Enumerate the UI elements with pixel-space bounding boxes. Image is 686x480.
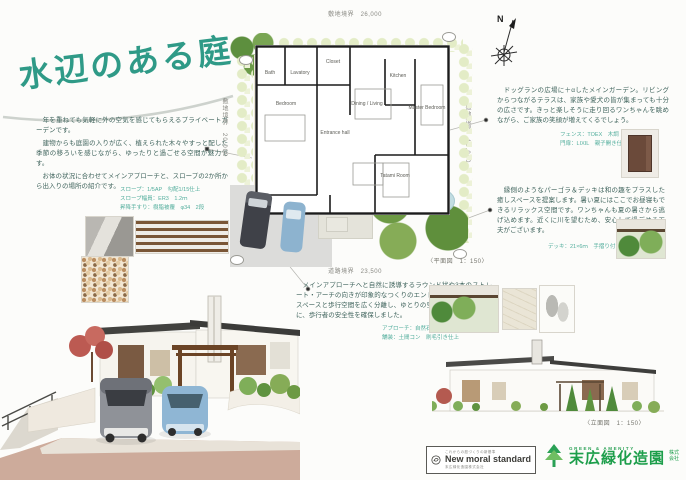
room-label: Bath <box>265 70 275 76</box>
compass-rose: N <box>483 12 529 70</box>
perspective-rendering <box>0 290 300 480</box>
company-tree-icon <box>543 443 565 469</box>
company-logo: GREEN & AMENITY 末広緑化造園 株式会社 <box>543 443 681 469</box>
intro-paragraphs: 年を重ねても気軽に外の空気を感じてもらえるプライベートガーデンです。 建物からも… <box>36 116 228 195</box>
intro-spec-line: スロープ幅員：ER3 1.2ｍ <box>120 195 204 204</box>
elevation-scale-label: 〈立面図 1：150〉 <box>545 418 645 427</box>
slope-step-photo <box>86 217 133 256</box>
annotation-2-spec-line: デッキ：21×6ｍ 手摺り付 <box>548 243 615 252</box>
plan-entrance-porch <box>326 217 348 232</box>
presentation-board: 水辺のある庭 年を重ねても気軽に外の空気を感じてもらえるプライベートガーデンです… <box>0 0 686 480</box>
render-entry-door <box>118 345 144 381</box>
annotation-1-specs: フェンス：TOEX 木調 門扉：LIXIL 親子開き仕様 <box>560 131 628 149</box>
compass-arrow <box>509 18 516 29</box>
compass-north-label: N <box>497 14 504 24</box>
elevation-rendering <box>432 332 664 424</box>
gate-product-photo <box>622 130 658 177</box>
intro-spec-list: スロープ：1/5AP 勾配1/15仕上 スロープ幅員：ER3 1.2ｍ 昇降手す… <box>120 186 204 212</box>
plan-dimension-left: 敷地境界 20,000 <box>220 98 229 157</box>
room-label: Kitchen <box>390 73 407 79</box>
intro-spec-line: スロープ：1/5AP 勾配1/15仕上 <box>120 186 204 195</box>
plan-corner-marker <box>442 32 456 42</box>
room-label: Tatami Room <box>380 173 409 179</box>
render-blue-car <box>162 386 208 436</box>
plan-wall-lines <box>255 45 450 215</box>
room-label: Closet <box>326 59 340 65</box>
render-van <box>100 378 152 443</box>
annotation-1-spec-line: 門扉：LIXIL 親子開き仕様 <box>560 140 628 149</box>
intro-paragraph-2: 建物からも庭園の入りが広く、植えられた木々やすっと配した季節の移ろいを感じながら… <box>36 139 228 169</box>
plan-scale-label: 〈平面図 1：150〉 <box>418 256 488 265</box>
badge-main-text: New moral standard <box>445 455 531 465</box>
intro-spec-line: 昇降手すり：樹脂被覆 φ34 2段 <box>120 204 204 213</box>
elevation-chimney <box>532 340 542 364</box>
plan-corner-marker <box>230 255 244 265</box>
room-label: Lavatory <box>290 70 309 76</box>
badge-bottom-text: 末広緑化造園株式会社 <box>445 465 531 470</box>
plan-house-footprint: Bedroom Bath Lavatory Closet Entrance ha… <box>255 45 450 215</box>
moral-standard-badge: これからの庭づくりの新基準 New moral standard 末広緑化造園株… <box>426 446 536 474</box>
plan-dimension-bottom: 道路境界 23,500 <box>300 266 410 275</box>
room-label: Dining / Living <box>351 101 382 107</box>
company-suffix: 株式会社 <box>669 450 681 462</box>
leaf-stone-art-photo <box>540 286 574 332</box>
annotation-block-1: ドッグランの広場に＋αしたメインガーデン。リビングからつながるテラスは、家族や愛… <box>497 86 669 126</box>
site-plan: Bedroom Bath Lavatory Closet Entrance ha… <box>230 25 485 270</box>
pergola-photo <box>617 220 665 258</box>
room-label: Entrance hall <box>320 130 349 136</box>
stone-material-swatch <box>503 289 536 329</box>
fence-product-photo <box>136 221 228 253</box>
annotation-1-spec-line: フェンス：TOEX 木調 <box>560 131 628 140</box>
plan-blue-car <box>280 201 306 253</box>
plan-corner-marker <box>239 55 253 65</box>
plan-dimension-top: 敷地境界 26,000 <box>290 9 420 18</box>
company-name: 末広緑化造園 <box>569 451 665 466</box>
badge-stamp-icon <box>431 451 441 469</box>
render-retaining-wall <box>28 388 95 432</box>
annotation-2-specs: デッキ：21×6ｍ 手摺り付 <box>548 243 615 252</box>
intro-paragraph-1: 年を重ねても気軽に外の空気を感じてもらえるプライベートガーデンです。 <box>36 116 228 136</box>
pergola-garden-photo <box>430 286 498 332</box>
room-label: Bedroom <box>276 101 296 107</box>
room-label: Master Bedroom <box>409 105 446 111</box>
